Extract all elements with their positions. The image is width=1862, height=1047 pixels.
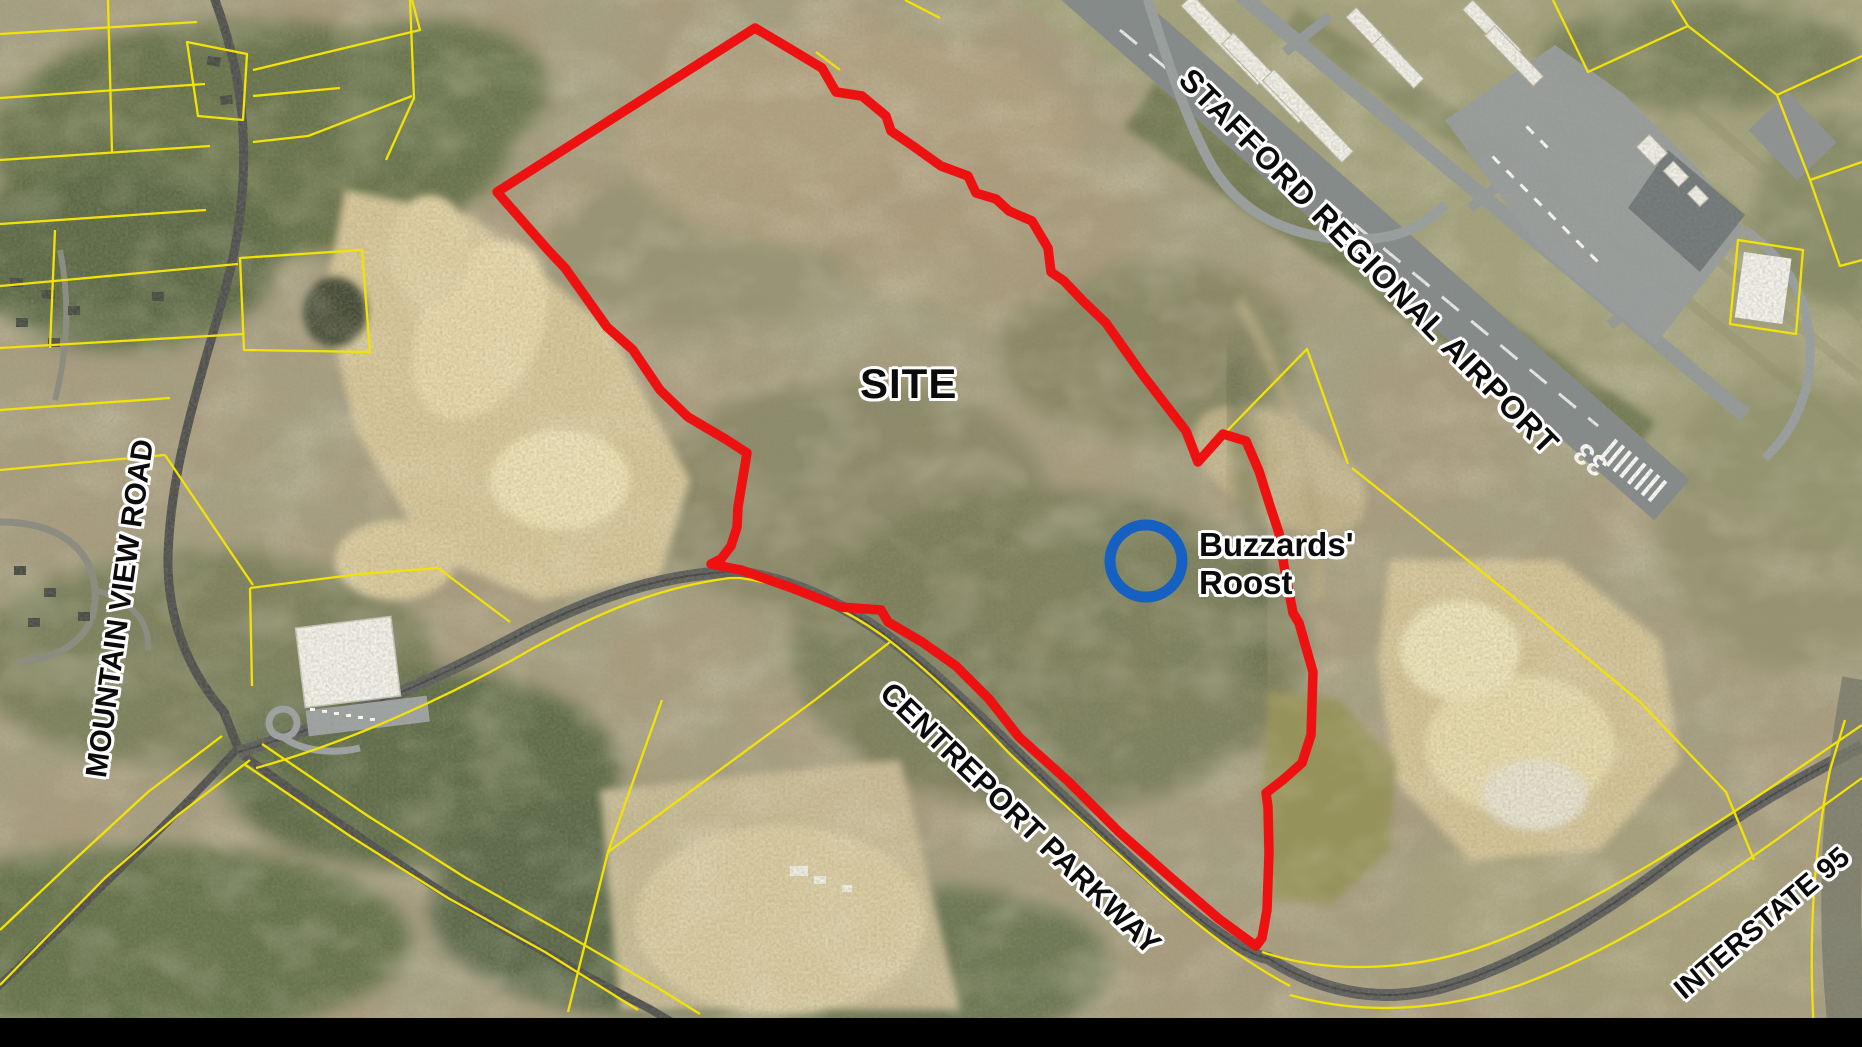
map-canvas: 33	[0, 0, 1862, 1047]
buzzards-roost-label-line2: Roost	[1199, 564, 1354, 602]
buzzards-roost-label-line1: Buzzards'	[1199, 526, 1354, 564]
aerial-map: 33	[0, 0, 1862, 1047]
letterbox-bar	[0, 1018, 1862, 1047]
site-label: SITE	[860, 361, 957, 407]
buzzards-roost-label: Buzzards' Roost	[1199, 526, 1354, 602]
